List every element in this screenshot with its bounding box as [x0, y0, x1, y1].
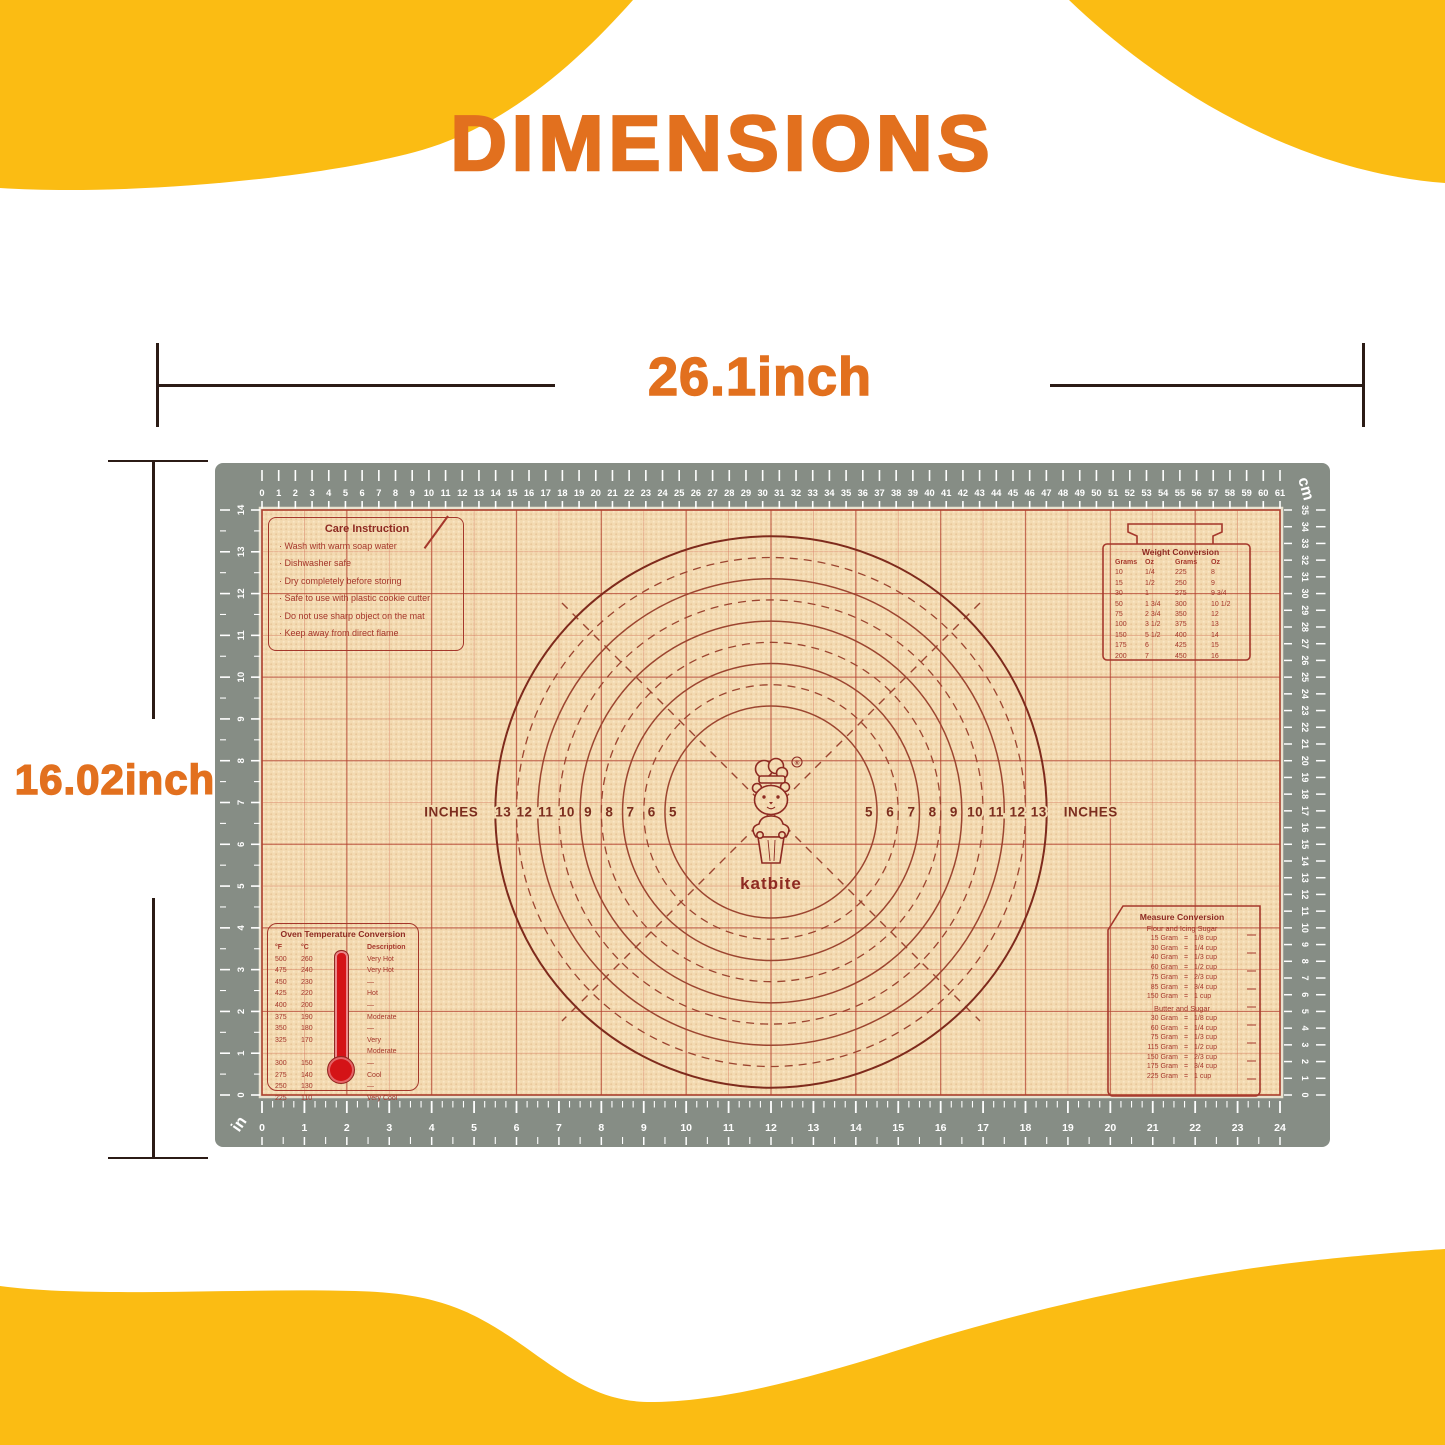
care-instruction-box: Care Instruction Wash with warm soap wat… [268, 517, 464, 651]
ruler-number: 11 [236, 630, 247, 641]
circle-size-label: 9 [584, 805, 592, 820]
ruler-number: 6 [236, 842, 247, 847]
ruler-number: 40 [924, 488, 934, 498]
ruler-number: 8 [1300, 959, 1310, 964]
table-cell: 8 [1211, 568, 1241, 578]
ruler-number: 1 [276, 488, 281, 498]
circle-size-label: INCHES [424, 805, 478, 820]
table-cell: 1 3/4 [1145, 600, 1175, 610]
ruler-number: 18 [1020, 1122, 1032, 1134]
bottom-wave [0, 1249, 1445, 1445]
table-cell: — [367, 977, 411, 989]
ruler-number: 11 [1300, 906, 1310, 916]
ruler-number: 11 [441, 488, 451, 498]
ruler-number: 29 [741, 488, 751, 498]
ruler-number: 7 [1300, 975, 1310, 980]
ruler-number: 10 [236, 672, 247, 683]
dimension-tick [1362, 343, 1365, 427]
table-cell: 5 1/2 [1145, 631, 1175, 641]
table-row: 75 Gram=2/3 cup [1118, 973, 1246, 983]
circle-size-label: 12 [1009, 805, 1025, 820]
table-row: 225 Gram=1 cup [1118, 1072, 1246, 1082]
table-cell: 1/4 cup [1194, 944, 1236, 954]
table-cell: 15 [1211, 641, 1241, 651]
ruler-number: 12 [457, 488, 467, 498]
ruler-number: 60 [1258, 488, 1268, 498]
ruler-number: 20 [591, 488, 601, 498]
table-cell: 16 [1211, 652, 1241, 662]
ruler-number: 4 [429, 1122, 435, 1134]
table-cell: 10 1/2 [1211, 600, 1241, 610]
dimension-line [152, 898, 155, 1158]
table-cell: 375 [275, 1012, 301, 1024]
ruler-number: 11 [723, 1122, 734, 1134]
table-cell: 60 Gram [1128, 1024, 1178, 1034]
circle-size-label: 9 [950, 805, 958, 820]
table-cell: = [1178, 1033, 1194, 1043]
table-cell: 1/3 cup [1194, 1033, 1236, 1043]
ruler-number: 37 [874, 488, 884, 498]
table-cell: 175 Gram [1128, 1062, 1178, 1072]
table-cell: 1 cup [1194, 992, 1236, 1002]
table-cell: 115 Gram [1128, 1043, 1178, 1053]
ruler-number: 26 [691, 488, 701, 498]
table-cell: = [1178, 1043, 1194, 1053]
dimension-line [156, 384, 555, 387]
table-cell: 1/8 cup [1194, 1014, 1236, 1024]
ruler-number: 4 [326, 488, 332, 498]
care-instruction-list: Wash with warm soap waterDishwasher safe… [279, 538, 455, 642]
ruler-number: 24 [657, 488, 668, 498]
ruler-number: 0 [236, 1092, 247, 1097]
circle-size-label: 13 [1031, 805, 1047, 820]
ruler-number: 22 [1300, 722, 1310, 732]
circle-size-label: 8 [929, 805, 937, 820]
table-cell: 400 [275, 1000, 301, 1012]
table-cell: = [1178, 953, 1194, 963]
table-cell: 475 [275, 965, 301, 977]
ruler-number: 16 [1300, 823, 1310, 833]
ruler-number: 5 [1300, 1009, 1310, 1014]
oven-temperature-box: Oven Temperature Conversion °F°CDescript… [267, 923, 419, 1091]
table-cell: 75 [1115, 610, 1145, 620]
ruler-number: 10 [424, 488, 434, 498]
measure-conversion-box: Measure Conversion Flour and Icing Sugar… [1112, 908, 1252, 1094]
table-cell: = [1178, 983, 1194, 993]
ruler-number: 12 [765, 1122, 777, 1134]
table-cell: 190 [301, 1012, 327, 1024]
table-cell: = [1178, 1024, 1194, 1034]
ruler-number: 31 [1300, 572, 1310, 582]
ruler-number: 48 [1058, 488, 1068, 498]
table-cell: 14 [1211, 631, 1241, 641]
ruler-number: 9 [641, 1122, 647, 1134]
table-cell: = [1178, 1014, 1194, 1024]
table-cell: = [1178, 1072, 1194, 1082]
ruler-number: 1 [301, 1122, 307, 1134]
table-cell: 200 [301, 1000, 327, 1012]
ruler-number: 0 [259, 1122, 265, 1134]
bear-paw [779, 832, 785, 838]
ruler-number: 42 [958, 488, 968, 498]
table-cell: 85 Gram [1128, 983, 1178, 993]
ruler-number: 13 [236, 546, 247, 557]
table-cell: 1/2 [1145, 579, 1175, 589]
ruler-number: 9 [410, 488, 415, 498]
ruler-number: 52 [1125, 488, 1135, 498]
ruler-number: 31 [774, 488, 784, 498]
table-cell: 30 Gram [1128, 1014, 1178, 1024]
table-cell: 325 [275, 1035, 301, 1058]
table-cell: 225 [1175, 568, 1211, 578]
thermometer-bulb [327, 1056, 355, 1084]
ruler-number: 27 [1300, 639, 1310, 649]
ruler-number: 8 [598, 1122, 604, 1134]
ruler-number: 14 [236, 504, 247, 515]
circle-size-label: INCHES [1064, 805, 1118, 820]
ruler-number: 14 [1300, 856, 1310, 866]
ruler-number: 53 [1141, 488, 1151, 498]
table-cell: 1/2 cup [1194, 963, 1236, 973]
table-cell: 175 [1115, 641, 1145, 651]
dimension-line [152, 461, 155, 719]
ruler-number: 35 [1300, 505, 1310, 515]
table-cell: 240 [301, 965, 327, 977]
ruler-number: 34 [1300, 522, 1310, 532]
ruler-number: 0 [1300, 1092, 1310, 1097]
ruler-number: 46 [1025, 488, 1035, 498]
table-cell: — [367, 1058, 411, 1070]
table-cell: Very Moderate [367, 1035, 411, 1058]
ruler-number: 17 [977, 1122, 989, 1134]
table-cell: 9 3/4 [1211, 589, 1241, 599]
circle-size-label: 5 [865, 805, 873, 820]
ruler-number: 51 [1108, 488, 1118, 498]
table-cell: 350 [1175, 610, 1211, 620]
ruler-number: 22 [1189, 1122, 1201, 1134]
table-cell: 2/3 cup [1194, 1053, 1236, 1063]
ruler-number: 1 [236, 1050, 247, 1056]
table-cell: 450 [275, 977, 301, 989]
table-cell: = [1178, 992, 1194, 1002]
table-cell: 500 [275, 954, 301, 966]
table-cell: 170 [301, 1035, 327, 1058]
ruler-number: 30 [757, 488, 767, 498]
table-row: 85 Gram=3/4 cup [1118, 983, 1246, 993]
ruler-number: 18 [1300, 789, 1310, 799]
ruler-number: 22 [624, 488, 634, 498]
ruler-number: 19 [1062, 1122, 1074, 1134]
care-instruction-item: Safe to use with plastic cookie cutter [279, 590, 455, 607]
circle-size-label: 7 [627, 805, 635, 820]
ruler-number: 17 [1300, 806, 1310, 816]
ruler-number: 33 [1300, 538, 1310, 548]
ruler-number: 58 [1225, 488, 1235, 498]
care-instruction-item: Keep away from direct flame [279, 625, 455, 642]
ruler-number: 16 [524, 488, 534, 498]
ruler-number: 15 [507, 488, 517, 498]
ruler-number: 14 [490, 488, 501, 498]
table-cell: 12 [1211, 610, 1241, 620]
ruler-number: 9 [236, 716, 247, 721]
ruler-number: 32 [1300, 555, 1310, 565]
ruler-number: 3 [309, 488, 314, 498]
table-cell: 1/8 cup [1194, 934, 1236, 944]
table-cell: Very Hot [367, 954, 411, 966]
table-cell: 10 [1115, 568, 1145, 578]
ruler-number: 23 [641, 488, 651, 498]
table-cell: 250 [1175, 579, 1211, 589]
table-cell: Description [367, 942, 411, 954]
bear-eye [776, 795, 779, 798]
ruler-number: 39 [908, 488, 918, 498]
table-cell: 150 Gram [1128, 1053, 1178, 1063]
bear-head [755, 786, 788, 815]
table-row: 60 Gram=1/4 cup [1118, 1024, 1246, 1034]
ruler-number: 33 [808, 488, 818, 498]
ruler-number: 2 [344, 1122, 350, 1134]
dimension-tick [108, 460, 208, 462]
table-cell: 180 [301, 1023, 327, 1035]
table-cell: = [1178, 934, 1194, 944]
table-cell: 9 [1211, 579, 1241, 589]
table-cell: 300 [275, 1058, 301, 1070]
table-cell: 250 [275, 1081, 301, 1093]
ruler-number: 23 [1232, 1122, 1244, 1134]
ruler-number: 3 [1300, 1042, 1310, 1047]
table-cell [327, 1093, 367, 1105]
ruler-number: 57 [1208, 488, 1218, 498]
ruler-number: 26 [1300, 655, 1310, 665]
table-cell: 150 [301, 1058, 327, 1070]
table-cell: 1/2 cup [1194, 1043, 1236, 1053]
table-cell: 130 [301, 1081, 327, 1093]
ruler-number: 43 [974, 488, 984, 498]
measure-conversion-sections: Flour and Icing Sugar15 Gram=1/8 cup30 G… [1118, 924, 1246, 1082]
cupcake-cup [758, 837, 784, 863]
ruler-number: 21 [607, 488, 617, 498]
table-cell: 7 [1145, 652, 1175, 662]
ruler-number: 12 [236, 588, 247, 599]
circle-size-label: 11 [538, 805, 553, 820]
ruler-number: 19 [574, 488, 584, 498]
table-cell: 15 Gram [1128, 934, 1178, 944]
ruler-number: 30 [1300, 589, 1310, 599]
ruler-number: 61 [1275, 488, 1285, 498]
table-row: 30 Gram=1/8 cup [1118, 1014, 1246, 1024]
circle-size-label: 10 [559, 805, 575, 820]
bear-eye [762, 795, 765, 798]
product-dimensions-image: DIMENSIONS 26.1inch 16.02inch [0, 0, 1445, 1445]
ruler-number: 25 [1300, 672, 1310, 682]
ruler-number: 32 [791, 488, 801, 498]
ruler-number: 12 [1300, 889, 1310, 899]
ruler-number: 5 [471, 1122, 477, 1134]
ruler-number: 25 [674, 488, 684, 498]
care-instruction-item: Dry completely before storing [279, 573, 455, 590]
ruler-number: 8 [393, 488, 398, 498]
table-cell: = [1178, 1053, 1194, 1063]
table-cell: °F [275, 942, 301, 954]
table-cell: 1/3 cup [1194, 953, 1236, 963]
ruler-number: 6 [514, 1122, 520, 1134]
circle-size-label: 10 [967, 805, 983, 820]
circle-size-label: 7 [907, 805, 915, 820]
bottom-wave-band [0, 1240, 1445, 1445]
table-cell: 150 Gram [1128, 992, 1178, 1002]
table-row: 75 Gram=1/3 cup [1118, 1033, 1246, 1043]
table-row: 30 Gram=1/4 cup [1118, 944, 1246, 954]
table-row: 115 Gram=1/2 cup [1118, 1043, 1246, 1053]
ruler-number: 8 [236, 758, 247, 763]
table-cell: 60 Gram [1128, 963, 1178, 973]
ruler-number: 56 [1191, 488, 1201, 498]
ruler-number: 15 [892, 1122, 904, 1134]
ruler-number: 54 [1158, 488, 1169, 498]
oven-temperature-title: Oven Temperature Conversion [275, 929, 411, 939]
table-cell: — [367, 1023, 411, 1035]
ruler-number: 34 [824, 488, 835, 498]
ruler-number: 28 [1300, 622, 1310, 632]
table-cell: 15 [1115, 579, 1145, 589]
ruler-number: 7 [556, 1122, 562, 1134]
table-cell: 140 [301, 1070, 327, 1082]
ruler-number: 6 [1300, 992, 1310, 997]
circle-size-label: 5 [669, 805, 677, 820]
ruler-number: 13 [474, 488, 484, 498]
table-row: 15 Gram=1/8 cup [1118, 934, 1246, 944]
ruler-number: 47 [1041, 488, 1051, 498]
table-cell: 3 1/2 [1145, 620, 1175, 630]
table-cell: — [367, 1000, 411, 1012]
table-cell: 100 [1115, 620, 1145, 630]
ruler-number: 59 [1241, 488, 1251, 498]
ruler-number: 2 [1300, 1059, 1310, 1064]
table-cell: 3/4 cup [1194, 1062, 1236, 1072]
table-cell: 30 Gram [1128, 944, 1178, 954]
table-cell: = [1178, 973, 1194, 983]
ruler-number: 6 [360, 488, 365, 498]
ruler-number: 20 [1104, 1122, 1116, 1134]
table-row: 150 Gram=2/3 cup [1118, 1053, 1246, 1063]
measure-conversion-title: Measure Conversion [1118, 912, 1246, 922]
table-cell: 75 Gram [1128, 1033, 1178, 1043]
table-header-cell: Grams [1175, 558, 1211, 568]
table-cell: Hot [367, 988, 411, 1000]
ruler-number: 24 [1300, 689, 1310, 699]
ruler-number: 7 [376, 488, 381, 498]
table-cell: 300 [1175, 600, 1211, 610]
ruler-number: 0 [259, 488, 264, 498]
table-cell: Very Hot [367, 965, 411, 977]
table-cell: = [1178, 963, 1194, 973]
table-cell: 425 [275, 988, 301, 1000]
table-cell: 450 [1175, 652, 1211, 662]
table-cell: 350 [275, 1023, 301, 1035]
table-cell: 225 [275, 1093, 301, 1105]
ruler-number: 36 [858, 488, 868, 498]
ruler-number: 10 [680, 1122, 692, 1134]
ruler-number: 21 [1147, 1122, 1159, 1134]
weight-conversion-table: GramsOzGramsOz101/42258151/225093012759 … [1115, 558, 1246, 662]
ruler-number: 13 [808, 1122, 820, 1134]
ruler-number: 28 [724, 488, 734, 498]
table-row: 225110Very Cool [275, 1093, 411, 1105]
ruler-number: 9 [1300, 942, 1310, 947]
table-cell: 200 [1115, 652, 1145, 662]
table-cell: 2 3/4 [1145, 610, 1175, 620]
ruler-number: 24 [1274, 1122, 1286, 1134]
thermometer-tube [334, 950, 349, 1068]
circle-size-label: 12 [516, 805, 532, 820]
circle-size-label: 13 [495, 805, 511, 820]
table-cell: Moderate [367, 1012, 411, 1024]
circle-size-label: 6 [886, 805, 894, 820]
table-cell: Very Cool [367, 1093, 411, 1105]
care-instruction-item: Do not use sharp object on the mat [279, 608, 455, 625]
table-cell: 6 [1145, 641, 1175, 651]
ruler-number: 7 [236, 800, 247, 805]
table-cell: 230 [301, 977, 327, 989]
ruler-number: 14 [850, 1122, 862, 1134]
measure-section-title: Flour and Icing Sugar [1118, 924, 1246, 933]
width-dimension-label: 26.1inch [520, 346, 1000, 408]
ruler-number: 18 [557, 488, 567, 498]
table-cell: 13 [1211, 620, 1241, 630]
ruler-number: 3 [236, 967, 247, 972]
measure-section-title: Butter and Sugar [1118, 1004, 1246, 1013]
weight-conversion-title: Weight Conversion [1115, 547, 1246, 557]
table-row: 150 Gram=1 cup [1118, 992, 1246, 1002]
table-header-cell: Grams [1115, 558, 1145, 568]
table-row: 40 Gram=1/3 cup [1118, 953, 1246, 963]
ruler-number: 38 [891, 488, 901, 498]
care-instruction-item: Dishwasher safe [279, 555, 455, 572]
dimension-line [1050, 384, 1363, 387]
ruler-number: 27 [707, 488, 717, 498]
circle-size-label: 6 [648, 805, 656, 820]
ruler-number: 23 [1300, 706, 1310, 716]
ruler-number: 5 [236, 883, 247, 889]
ruler-number: 35 [841, 488, 851, 498]
table-cell: 275 [275, 1070, 301, 1082]
chef-hat-band [759, 776, 785, 783]
table-cell: 40 Gram [1128, 953, 1178, 963]
ruler-number: 13 [1300, 873, 1310, 883]
table-cell: Cool [367, 1070, 411, 1082]
ruler-number: 49 [1075, 488, 1085, 498]
table-cell: 260 [301, 954, 327, 966]
table-cell: 2/3 cup [1194, 973, 1236, 983]
ruler-number: 4 [1300, 1026, 1310, 1031]
table-cell: 425 [1175, 641, 1211, 651]
ruler-number: 15 [1300, 839, 1310, 849]
weight-conversion-box: Weight Conversion GramsOzGramsOz101/4225… [1103, 545, 1250, 659]
table-cell: 1 [1145, 589, 1175, 599]
ruler-number: 50 [1091, 488, 1101, 498]
ruler-number: 5 [343, 488, 348, 498]
ruler-number: 17 [541, 488, 551, 498]
registered-mark: ® [795, 759, 800, 767]
page-title: DIMENSIONS [0, 98, 1445, 189]
ruler-number: 21 [1300, 739, 1310, 749]
table-cell: 225 Gram [1128, 1072, 1178, 1082]
table-cell: 110 [301, 1093, 327, 1105]
table-cell: 1 cup [1194, 1072, 1236, 1082]
ruler-number: 10 [1300, 923, 1310, 933]
dimension-tick [108, 1157, 208, 1159]
bear-paw [757, 832, 763, 838]
